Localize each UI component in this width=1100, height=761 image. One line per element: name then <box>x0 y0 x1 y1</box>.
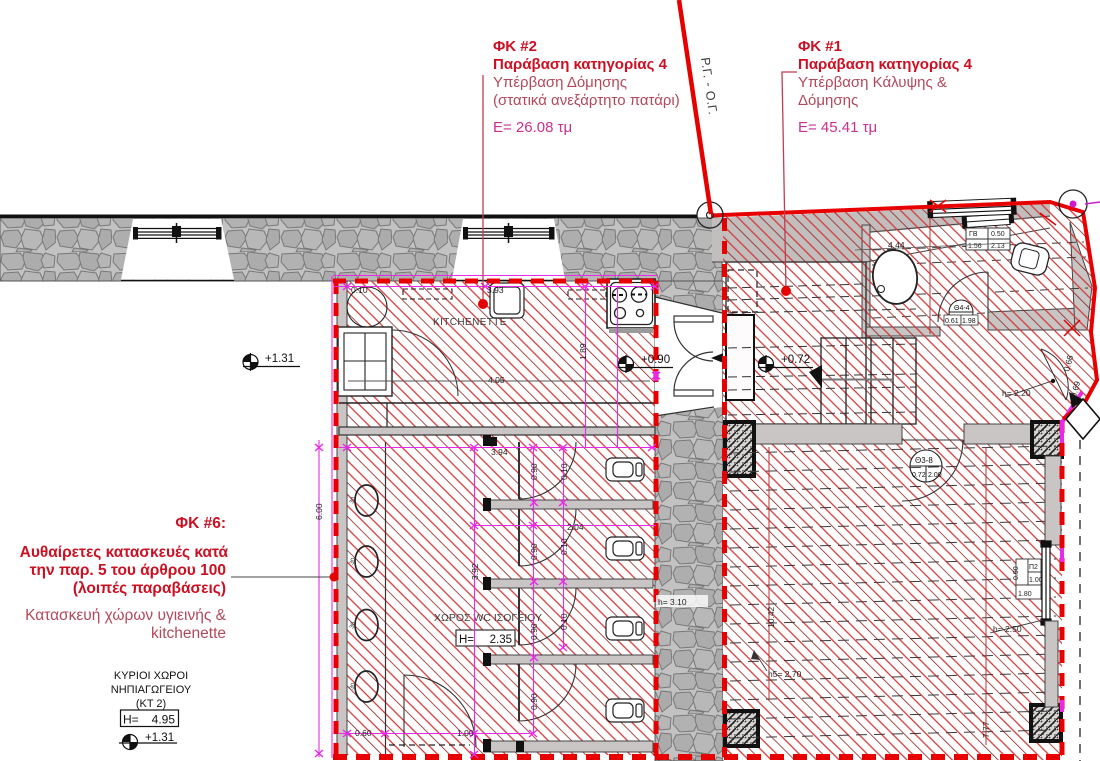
svg-text:ΧΩΡΟΣ WC ΙΣΟΓΕΙΟΥ: ΧΩΡΟΣ WC ΙΣΟΓΕΙΟΥ <box>434 612 542 624</box>
svg-text:3.92: 3.92 <box>470 563 480 580</box>
svg-text:Ε= 45.41 τμ: Ε= 45.41 τμ <box>798 119 877 136</box>
svg-text:2.04: 2.04 <box>567 522 584 532</box>
svg-text:+0.72: +0.72 <box>781 354 810 366</box>
svg-text:6.00: 6.00 <box>314 503 324 520</box>
svg-text:ΝΗΠΙΑΓΩΓΕΙΟΥ: ΝΗΠΙΑΓΩΓΕΙΟΥ <box>111 684 192 696</box>
svg-text:ΓΒ: ΓΒ <box>969 231 978 238</box>
svg-text:ΦΚ #6:: ΦΚ #6: <box>175 515 226 532</box>
svg-text:h5= 2.70: h5= 2.70 <box>768 669 802 679</box>
svg-text:h= 3.10: h= 3.10 <box>658 597 687 607</box>
svg-text:Π2: Π2 <box>1029 564 1038 571</box>
svg-text:0.10: 0.10 <box>559 613 569 630</box>
svg-text:kitchenette: kitchenette <box>151 625 226 642</box>
svg-text:1.98: 1.98 <box>962 318 976 325</box>
svg-text:Υπέρβαση Δόμησης: Υπέρβαση Δόμησης <box>493 74 627 91</box>
svg-text:0.50: 0.50 <box>991 231 1005 238</box>
svg-text:0.90: 0.90 <box>529 693 539 710</box>
svg-text:3.93: 3.93 <box>487 285 504 295</box>
svg-text:+1.31: +1.31 <box>145 732 174 744</box>
svg-text:(στατικά ανεξάρτητο πατάρι): (στατικά ανεξάρτητο πατάρι) <box>493 92 680 109</box>
svg-text:0.90: 0.90 <box>529 623 539 640</box>
svg-text:4.05: 4.05 <box>488 375 505 385</box>
svg-text:3.94: 3.94 <box>491 447 508 457</box>
svg-text:+1.31: +1.31 <box>265 353 294 365</box>
svg-text:Δόμησης: Δόμησης <box>798 92 858 109</box>
svg-text:ΚΥΡΙΟΙ ΧΩΡΟΙ: ΚΥΡΙΟΙ ΧΩΡΟΙ <box>114 670 188 682</box>
svg-text:0.10: 0.10 <box>559 463 569 480</box>
svg-text:την παρ. 5 του άρθρου 100: την παρ. 5 του άρθρου 100 <box>30 562 226 579</box>
svg-text:Ε= 26.08 τμ: Ε= 26.08 τμ <box>493 119 572 136</box>
svg-text:1.80: 1.80 <box>1018 591 1032 598</box>
svg-text:0.90: 0.90 <box>529 463 539 480</box>
svg-text:ΦΚ #1: ΦΚ #1 <box>798 38 842 55</box>
svg-text:1.89: 1.89 <box>578 343 588 360</box>
svg-text:0.72: 0.72 <box>912 472 926 479</box>
svg-text:Αυθαίρετες κατασκευές κατά: Αυθαίρετες κατασκευές κατά <box>20 544 229 561</box>
svg-text:H=: H= <box>459 634 474 646</box>
svg-text:(ΚΤ 2): (ΚΤ 2) <box>136 698 166 710</box>
svg-text:1.00: 1.00 <box>457 728 474 738</box>
svg-text:ΦΚ #2: ΦΚ #2 <box>493 38 537 55</box>
svg-text:Παράβαση κατηγορίας 4: Παράβαση κατηγορίας 4 <box>798 56 973 73</box>
svg-text:Θ3-8: Θ3-8 <box>915 456 933 465</box>
svg-text:H=: H= <box>123 713 139 727</box>
svg-text:Υπέρβαση Κάλυψης &: Υπέρβαση Κάλυψης & <box>798 74 947 91</box>
svg-text:Παράβαση κατηγορίας 4: Παράβαση κατηγορίας 4 <box>493 56 668 73</box>
svg-text:4.95: 4.95 <box>152 713 176 727</box>
svg-text:KITCHENETTE: KITCHENETTE <box>433 317 507 328</box>
svg-text:2.35: 2.35 <box>490 634 512 646</box>
svg-text:Κατασκευή χώρων υγιεινής &: Κατασκευή χώρων υγιεινής & <box>25 607 227 624</box>
svg-text:10.42: 10.42 <box>766 606 776 628</box>
svg-text:Θ4-4: Θ4-4 <box>954 305 970 312</box>
svg-text:0.90: 0.90 <box>1013 566 1020 580</box>
svg-text:+0.90: +0.90 <box>641 354 670 366</box>
svg-text:0.60: 0.60 <box>355 728 372 738</box>
svg-text:7.77: 7.77 <box>981 721 991 738</box>
svg-text:0.61: 0.61 <box>945 318 959 325</box>
svg-text:(λοιπές παραβάσεις): (λοιπές παραβάσεις) <box>73 580 226 597</box>
svg-text:1.00: 1.00 <box>1029 577 1043 584</box>
svg-text:0.10: 0.10 <box>351 285 368 295</box>
svg-text:0.10: 0.10 <box>559 538 569 555</box>
svg-text:0.90: 0.90 <box>529 543 539 560</box>
svg-text:2.00: 2.00 <box>928 472 942 479</box>
